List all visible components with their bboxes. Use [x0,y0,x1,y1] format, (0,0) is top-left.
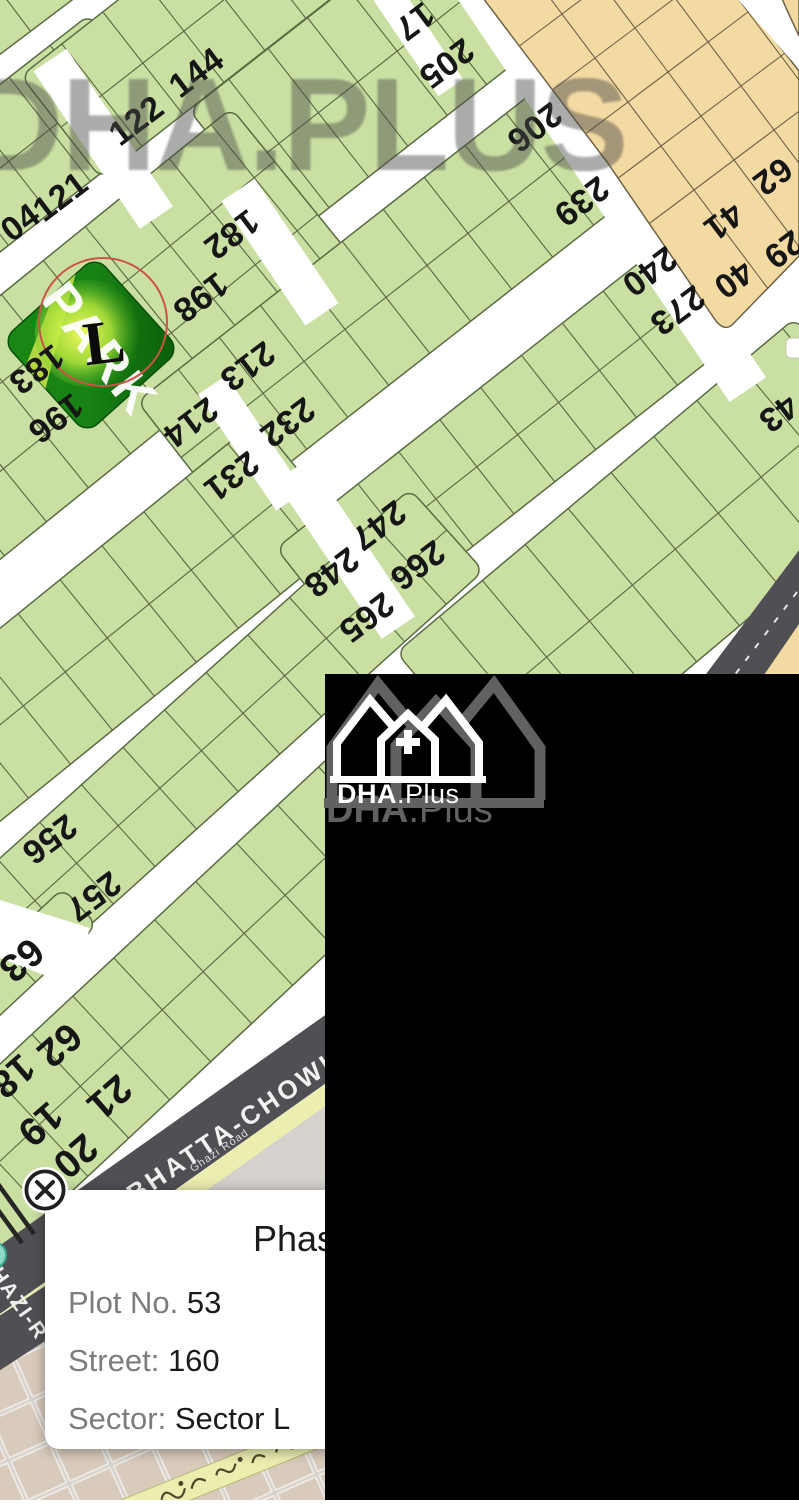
svg-text:DHA.PLUS: DHA.PLUS [0,51,627,198]
svg-text:L: L [80,307,129,380]
